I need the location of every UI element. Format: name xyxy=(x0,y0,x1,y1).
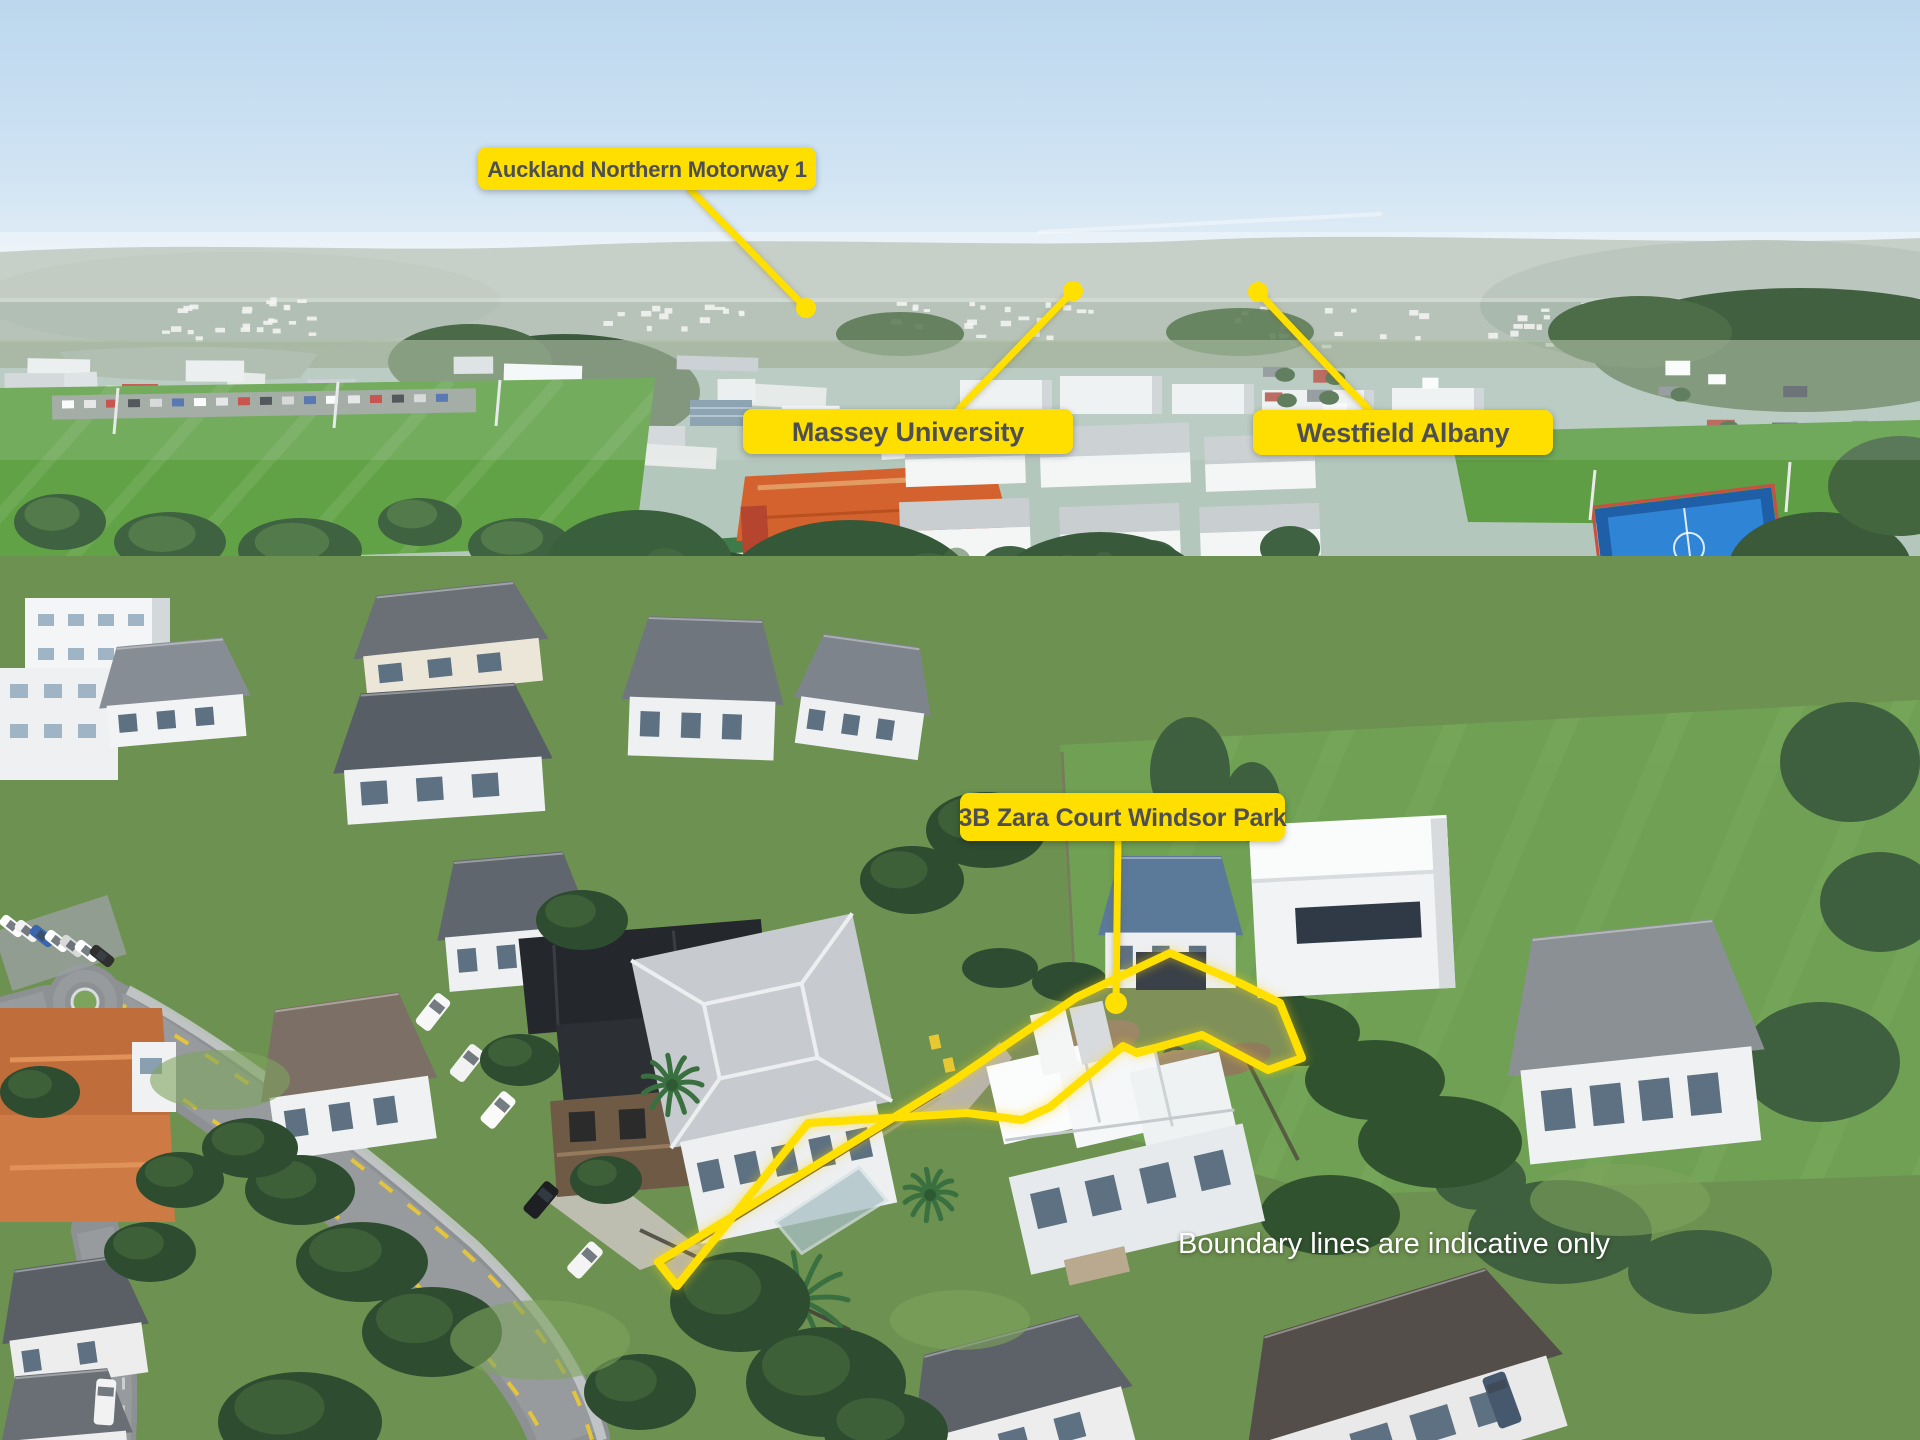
callout-westfield-label: Westfield Albany xyxy=(1297,420,1510,447)
leader-dot-property xyxy=(1105,992,1127,1014)
callout-massey: Massey University xyxy=(743,409,1073,454)
leader-dot-massey xyxy=(1063,281,1083,301)
aerial-photo-canvas xyxy=(0,0,1920,1440)
callout-property: 3B Zara Court Windsor Park xyxy=(960,793,1285,841)
callout-westfield: Westfield Albany xyxy=(1253,410,1553,455)
foreground-neighbourhood xyxy=(0,556,1920,1440)
callout-property-label: 3B Zara Court Windsor Park xyxy=(959,806,1287,831)
leader-dot-westfield xyxy=(1248,282,1268,302)
callout-motorway: Auckland Northern Motorway 1 xyxy=(478,147,816,190)
callout-motorway-label: Auckland Northern Motorway 1 xyxy=(487,159,807,181)
callout-massey-label: Massey University xyxy=(792,419,1024,446)
boundary-disclaimer: Boundary lines are indicative only xyxy=(1178,1228,1610,1261)
aerial-photo: Auckland Northern Motorway 1 Massey Univ… xyxy=(0,0,1920,1440)
leader-dot-motorway xyxy=(796,298,816,318)
